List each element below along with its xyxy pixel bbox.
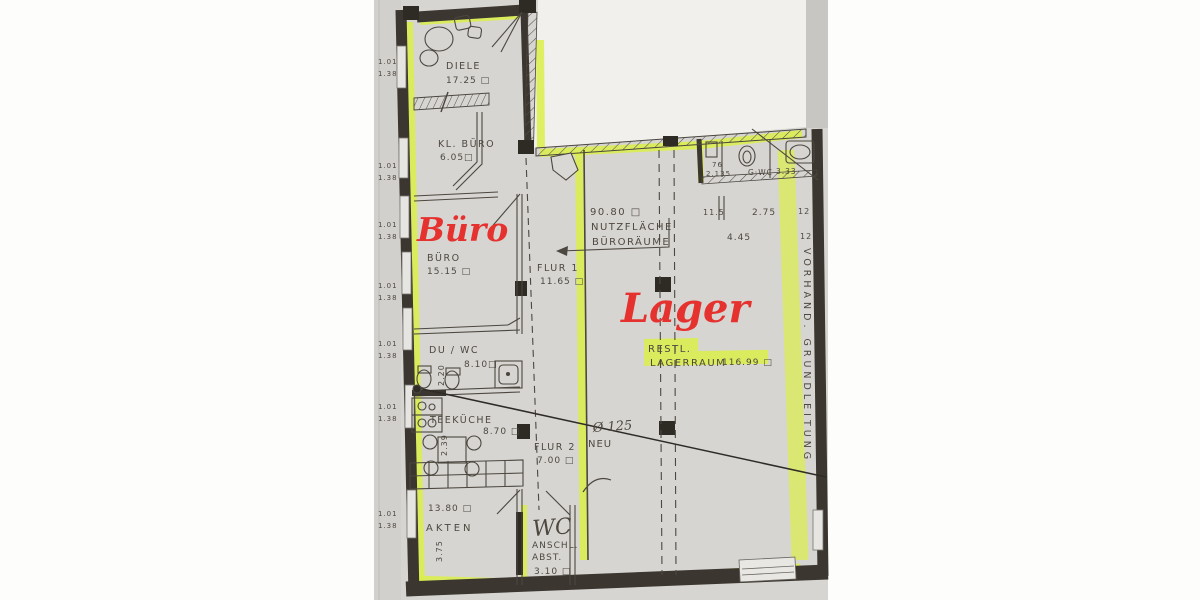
win-dim: 1.38 [378,174,398,182]
win-dim: 1.38 [378,352,398,360]
nutz-line1: 90.80 □ [590,207,642,218]
room-du-wc: DU / WC [429,345,479,356]
win-dim: 1.01 [378,162,398,170]
wc-abst: ABST. [532,553,562,563]
rest-line2: LAGERRAUM [650,358,726,369]
nutz-line3: BÜRORÄUME [592,235,670,248]
room-buero: BÜRO [427,253,461,264]
room-diele: DIELE [446,61,481,72]
room-akten: AKTEN [426,523,474,534]
room-teekueche-area: 8.70 □ [483,427,520,437]
rest-area: 116.99 □ [722,358,773,368]
red-label-lager: Lager [620,285,752,332]
gwc-left-wall [699,139,701,183]
floorplan-scan: 1.01 1.38 1.01 1.38 1.01 1.38 1.01 1.38 … [0,0,1200,600]
win-dim: 1.38 [378,522,398,530]
room-flur1-area: 11.65 □ [540,277,584,287]
win-dim: 1.01 [378,340,398,348]
lager-dim-3: 4.45 [727,233,751,243]
win-dim: 1.01 [378,221,398,229]
vorhand-grundleitung: VORHAND. GRUNDLEITUNG [801,248,812,463]
room-teekueche: TEEKÜCHE [429,415,493,426]
win-dim: 1.38 [378,70,398,78]
win-dim: 1.01 [378,510,398,518]
white-band [534,0,806,148]
photo-corner [806,0,828,128]
win-dim: 1.38 [378,415,398,423]
right-outer-wall [817,129,823,576]
wc-anschl: ANSCHL. [532,541,579,551]
floorplan-svg: 1.01 1.38 1.01 1.38 1.01 1.38 1.01 1.38 … [0,0,1200,600]
room-du-wc-area: 8.10□ [464,360,498,370]
lager-dim-r2: 12 [800,232,812,241]
room-buero-area: 15.15 □ [427,267,471,277]
right-wall-window [813,510,823,550]
rest-line1: RESTL. [648,344,691,355]
wc-area: 3.10 □ [534,567,571,577]
lager-dim-2: 2.75 [752,208,776,218]
pipe-diameter: Ø 125 [591,418,633,436]
akten-dim: 3.75 [435,540,444,562]
room-kl-buero-area: 6.05□ [440,153,474,163]
gwc-dim-b: 2.135 [706,170,731,178]
room-kl-buero: KL. BÜRO [438,139,495,150]
room-flur2: FLUR 2 [534,442,576,453]
room-flur2-area: 7.00 □ [537,456,574,466]
bottom-door [739,557,796,582]
room-flur1: FLUR 1 [537,263,579,274]
scan-background [0,0,1200,600]
du-wc-dim: 2.20 [437,364,446,386]
room-gwc-area: 3.33 [776,167,797,176]
win-dim: 1.01 [378,58,398,66]
red-label-buero: Büro [416,210,508,249]
teekueche-dim: 2.39 [440,434,449,456]
room-diele-area: 17.25 □ [446,76,490,86]
lager-dim-1: 11.5 [703,208,725,217]
pipe-neu: NEU [588,439,612,450]
win-dim: 1.38 [378,294,398,302]
nutz-line2: NUTZFLÄCHE [591,220,673,233]
room-akten-area: 13.80 □ [428,504,472,514]
top-wall [417,10,524,17]
room-wc-handwritten: WC [532,514,573,542]
gwc-dim-a: 76 [712,161,723,169]
pipe-start [413,385,421,393]
win-dim: 1.38 [378,233,398,241]
lager-dim-r1: 12 [798,207,810,216]
room-gwc: G·WC [748,168,773,177]
win-dim: 1.01 [378,403,398,411]
win-dim: 1.01 [378,282,398,290]
